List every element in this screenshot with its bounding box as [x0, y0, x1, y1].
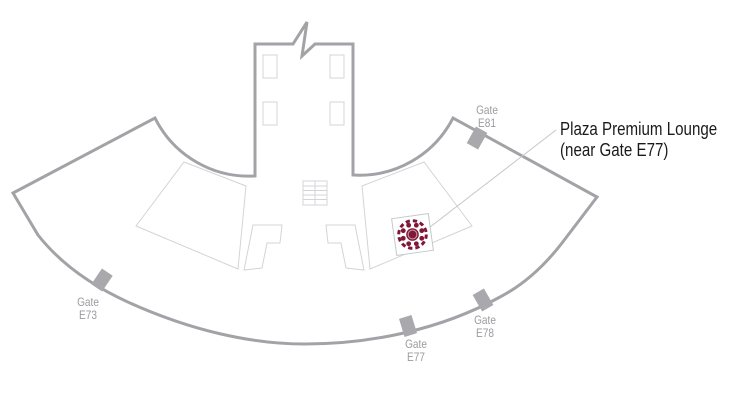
gate-label-e81: Gate E81: [462, 104, 512, 130]
terminal-map: Gate E73 Gate E77 Gate E78 Gate E81 Plaz…: [0, 0, 730, 400]
lounge-callout-title: Plaza Premium Lounge: [560, 119, 717, 140]
gate-label-number: E77: [391, 351, 441, 364]
gate-label-e77: Gate E77: [391, 338, 441, 364]
gate-label-number: E78: [460, 327, 510, 340]
gate-label-number: E73: [63, 309, 113, 322]
gate-label-number: E81: [462, 117, 512, 130]
map-canvas: [0, 0, 730, 400]
lounge-callout-subtitle: (near Gate E77): [560, 140, 717, 161]
gate-label-e73: Gate E73: [63, 296, 113, 322]
gate-label-e78: Gate E78: [460, 314, 510, 340]
plaza-premium-lounge-icon: [392, 214, 434, 256]
lounge-callout: Plaza Premium Lounge (near Gate E77): [560, 119, 717, 160]
